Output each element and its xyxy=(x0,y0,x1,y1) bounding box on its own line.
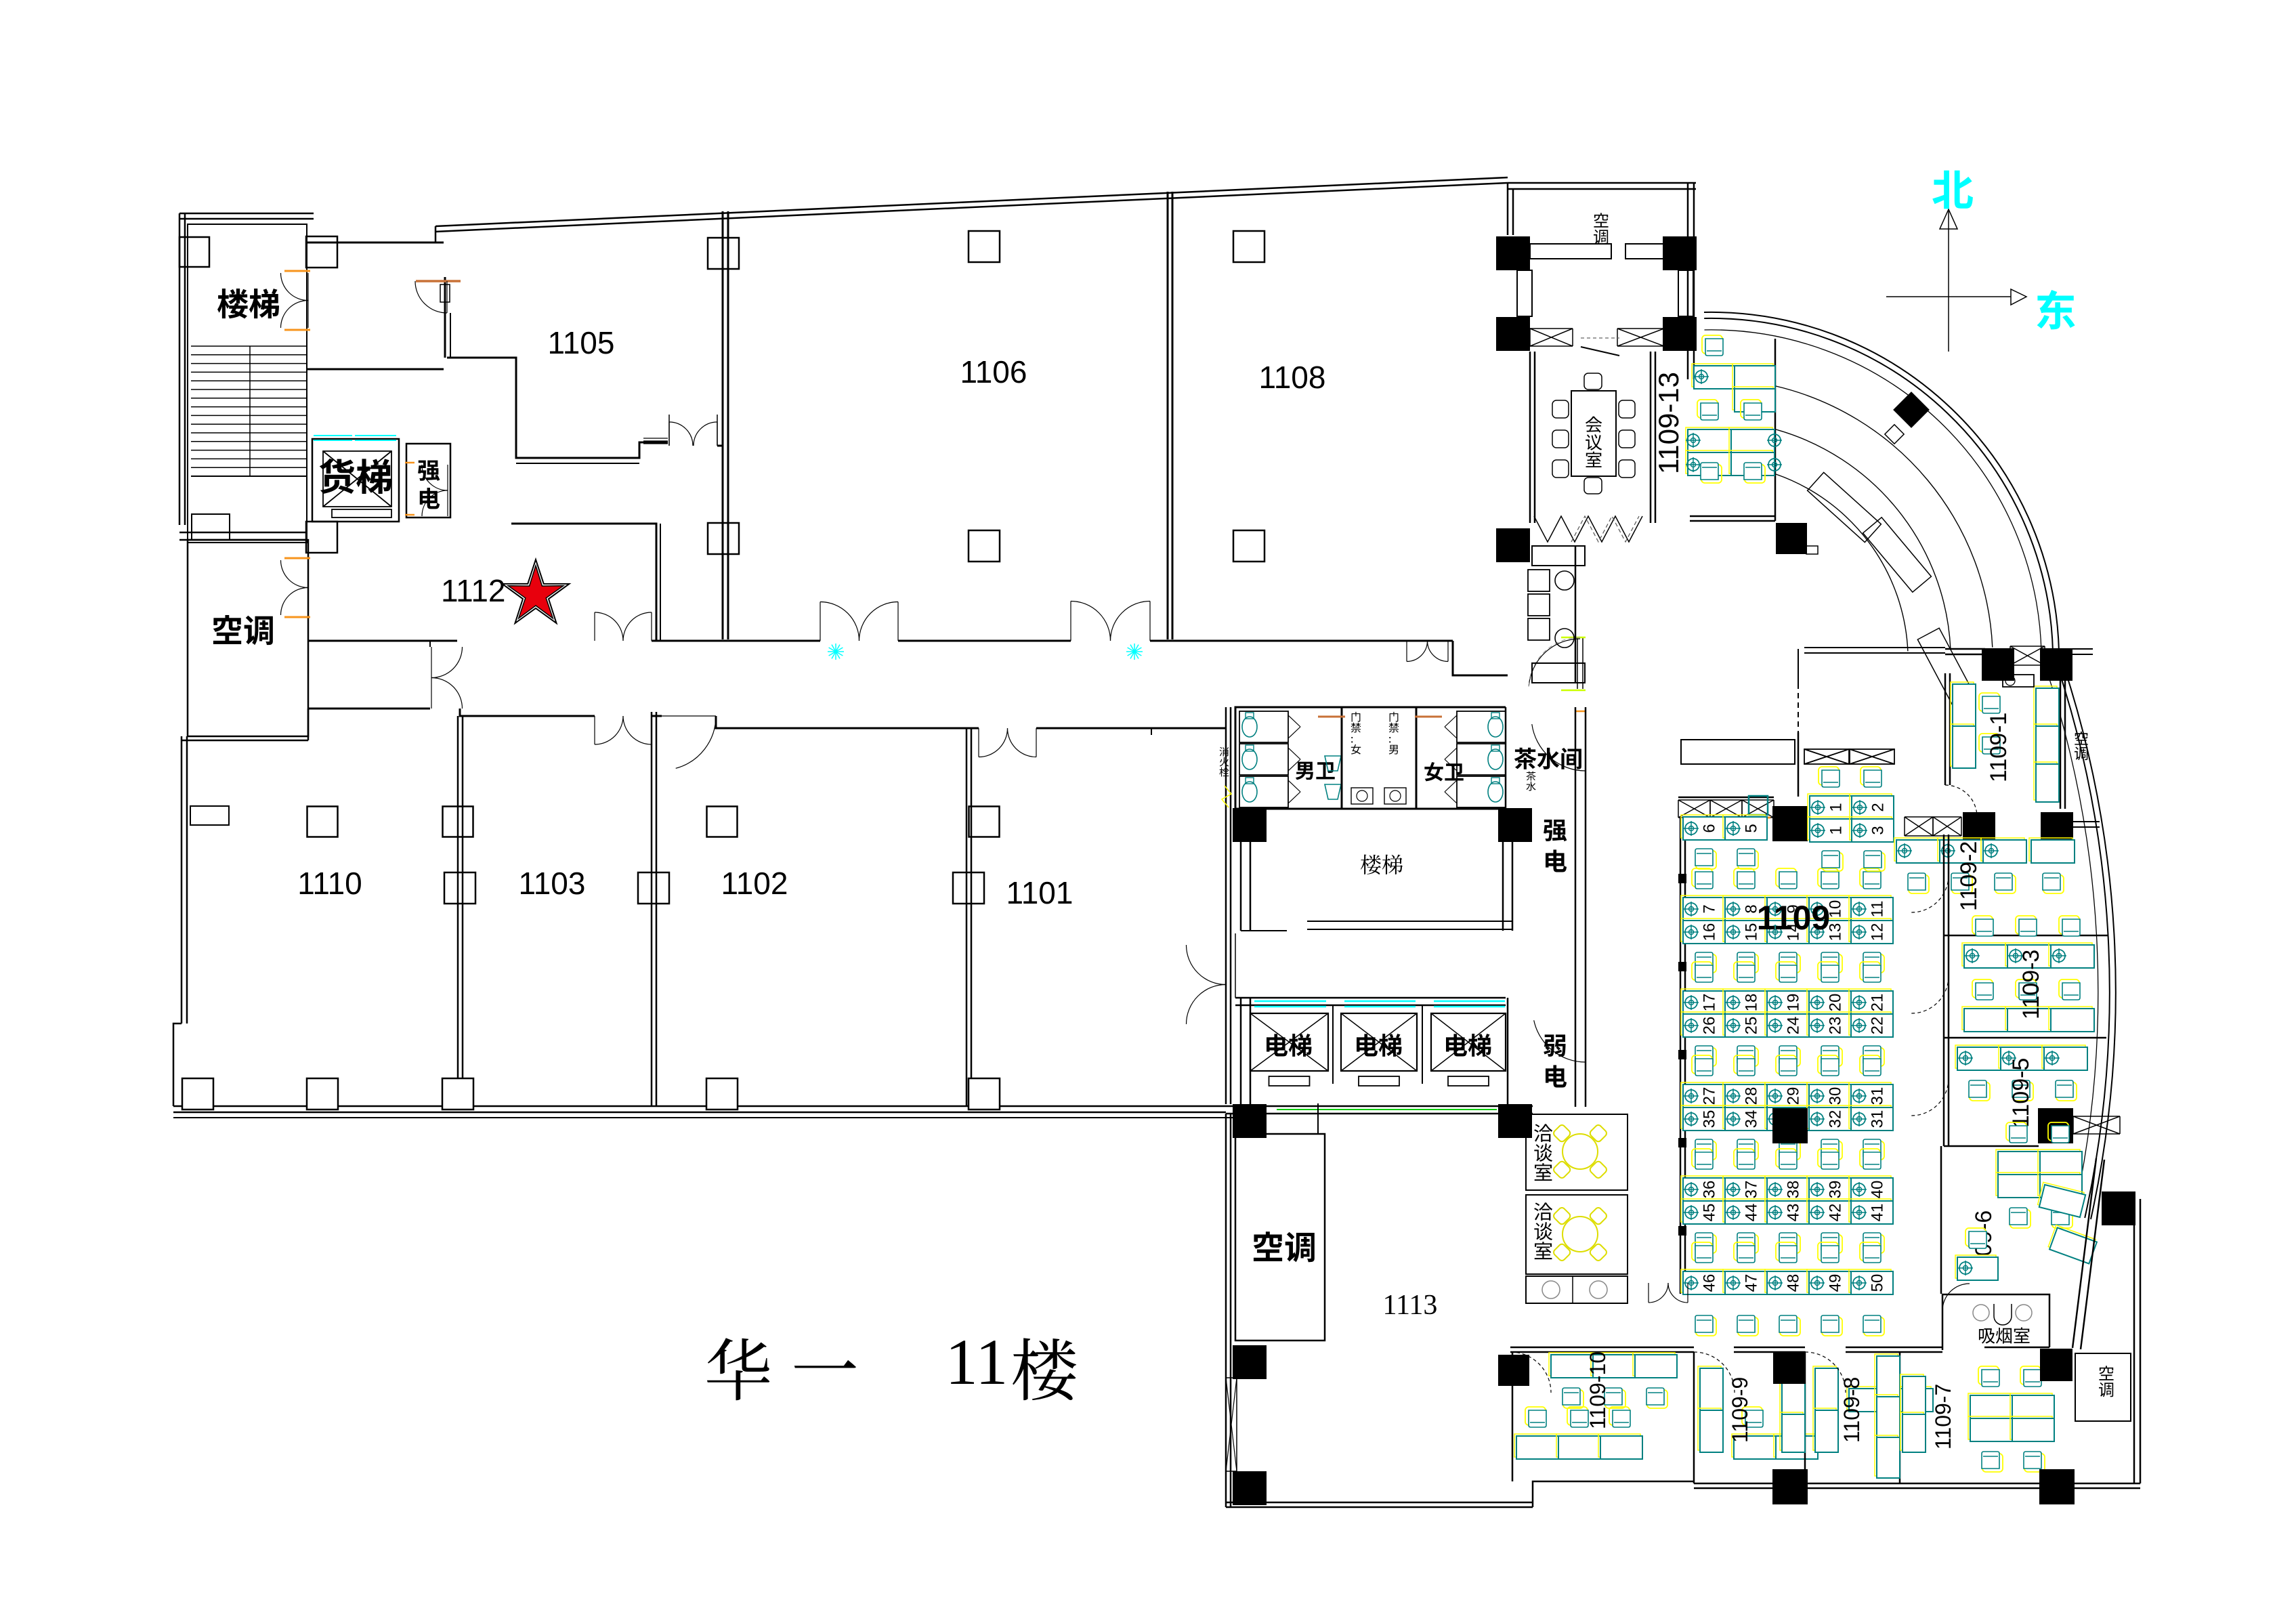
svg-text:6: 6 xyxy=(1700,824,1718,832)
svg-text:7: 7 xyxy=(1700,904,1718,913)
svg-text:30: 30 xyxy=(1826,1087,1844,1105)
svg-text:5: 5 xyxy=(1742,824,1760,832)
svg-text:25: 25 xyxy=(1742,1017,1760,1035)
svg-text:1108: 1108 xyxy=(1259,360,1326,395)
svg-text:40: 40 xyxy=(1868,1181,1886,1199)
svg-text:24: 24 xyxy=(1784,1017,1802,1035)
svg-text:36: 36 xyxy=(1700,1181,1718,1199)
svg-text:1109-5: 1109-5 xyxy=(2008,1058,2034,1128)
svg-text:1110: 1110 xyxy=(297,866,362,901)
svg-text:1109-13: 1109-13 xyxy=(1653,372,1684,474)
svg-text:43: 43 xyxy=(1784,1204,1802,1222)
svg-text:1109-1: 1109-1 xyxy=(1986,713,2012,782)
svg-text:29: 29 xyxy=(1784,1087,1802,1105)
svg-text:45: 45 xyxy=(1700,1204,1718,1222)
svg-text:1105: 1105 xyxy=(548,325,615,360)
svg-text:26: 26 xyxy=(1700,1017,1718,1035)
svg-text:1109: 1109 xyxy=(1757,899,1830,937)
svg-text:48: 48 xyxy=(1784,1274,1802,1292)
svg-text:1: 1 xyxy=(1827,826,1845,835)
svg-text:1106: 1106 xyxy=(960,354,1027,389)
svg-text:22: 22 xyxy=(1868,1017,1886,1035)
svg-text:16: 16 xyxy=(1700,923,1718,942)
svg-text:1109-9: 1109-9 xyxy=(1728,1377,1752,1443)
svg-text:1109-3: 1109-3 xyxy=(2018,950,2044,1019)
svg-text:12: 12 xyxy=(1868,923,1886,942)
svg-text:27: 27 xyxy=(1700,1087,1718,1105)
svg-text:1102: 1102 xyxy=(721,866,788,901)
svg-text:1112: 1112 xyxy=(441,573,506,608)
svg-text:47: 47 xyxy=(1742,1274,1760,1292)
svg-text:1101: 1101 xyxy=(1006,875,1073,910)
svg-text:32: 32 xyxy=(1826,1110,1844,1128)
svg-text:21: 21 xyxy=(1868,994,1886,1012)
svg-text:1109-2: 1109-2 xyxy=(1956,841,1982,911)
svg-text:28: 28 xyxy=(1742,1087,1760,1105)
svg-text:42: 42 xyxy=(1826,1204,1844,1222)
svg-text:11: 11 xyxy=(1868,901,1886,918)
svg-text:1109-8: 1109-8 xyxy=(1840,1377,1864,1443)
svg-text:34: 34 xyxy=(1742,1110,1760,1128)
svg-text:35: 35 xyxy=(1700,1110,1718,1128)
svg-text:1103: 1103 xyxy=(519,866,586,901)
svg-text:44: 44 xyxy=(1742,1204,1760,1222)
svg-text:1113: 1113 xyxy=(1383,1290,1438,1321)
svg-text:18: 18 xyxy=(1742,994,1760,1012)
svg-text:19: 19 xyxy=(1784,994,1802,1012)
svg-text:46: 46 xyxy=(1700,1274,1718,1292)
svg-text:50: 50 xyxy=(1868,1274,1886,1292)
svg-text:31: 31 xyxy=(1868,1087,1886,1105)
svg-text:1109-10: 1109-10 xyxy=(1586,1351,1610,1429)
svg-text:41: 41 xyxy=(1868,1204,1886,1222)
svg-text:37: 37 xyxy=(1742,1181,1760,1199)
svg-text:31: 31 xyxy=(1868,1110,1886,1128)
svg-text:49: 49 xyxy=(1826,1274,1844,1292)
svg-text:1109-7: 1109-7 xyxy=(1931,1384,1955,1450)
svg-text:17: 17 xyxy=(1700,994,1718,1012)
svg-text:23: 23 xyxy=(1826,1017,1844,1035)
svg-text:3: 3 xyxy=(1869,826,1887,835)
svg-text:20: 20 xyxy=(1826,994,1844,1012)
svg-text:39: 39 xyxy=(1826,1181,1844,1199)
svg-text:11: 11 xyxy=(945,1326,1008,1398)
svg-text:2: 2 xyxy=(1869,803,1887,811)
svg-text:1: 1 xyxy=(1827,803,1845,811)
svg-text:38: 38 xyxy=(1784,1181,1802,1199)
